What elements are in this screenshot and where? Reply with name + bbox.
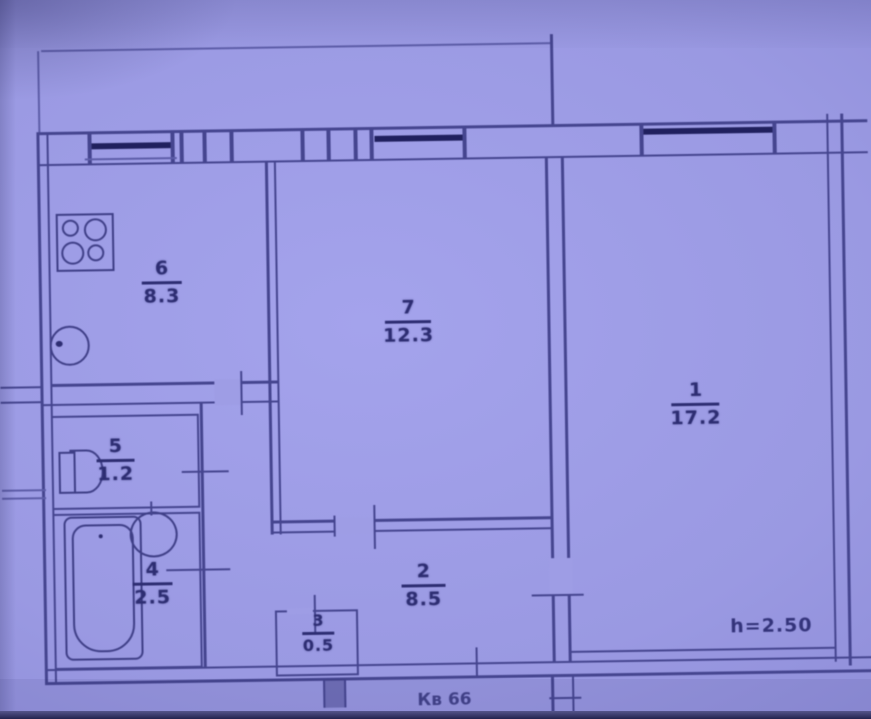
window-post [772, 121, 777, 155]
room-number: 6 [155, 259, 169, 278]
room-label-bathroom: 4 2.5 [132, 560, 173, 608]
stove-burner [61, 241, 84, 264]
door-opening-kitchen [214, 379, 240, 405]
window-mullion [326, 128, 331, 162]
wall-right-inner [826, 114, 837, 662]
window-mullion [179, 130, 184, 164]
room-area: 8.5 [405, 590, 442, 610]
fraction-bar [302, 632, 334, 636]
room-label-hallway: 2 8.5 [401, 562, 446, 610]
door-opening-room7 [335, 517, 373, 535]
door-swing-tick-kitchen [240, 371, 243, 415]
window-mullion [353, 127, 358, 161]
room-number: 7 [401, 298, 415, 317]
wall-room7-bottom [271, 527, 553, 533]
room-number: 1 [689, 381, 703, 400]
photo-shadow-left [0, 0, 16, 719]
stove-burner [87, 244, 104, 261]
floor-plan-photo: 6 8.3 7 12.3 1 17.2 5 1.2 4 2.5 2 8.5 [0, 0, 871, 719]
wall-left-outer [36, 132, 48, 684]
fraction-bar [97, 459, 135, 463]
room-number: 5 [109, 437, 123, 456]
room-label-room7: 7 12.3 [383, 298, 435, 346]
window-mullion [202, 130, 207, 164]
room-label-closet: 3 0.5 [302, 613, 335, 654]
window-mullion [229, 129, 234, 163]
room-area: 17.2 [670, 409, 721, 429]
stove-icon [56, 213, 115, 272]
room-label-wc: 5 1.2 [96, 437, 135, 485]
door-jamb-room7 [333, 516, 335, 537]
window-mullion [300, 128, 305, 162]
room-area: 1.2 [97, 465, 134, 485]
door-swing-tick-room7 [373, 505, 376, 549]
wall-room7-left [265, 161, 274, 535]
window-post [462, 125, 467, 159]
wall-room7-left [274, 160, 282, 534]
room-number: 4 [145, 560, 159, 579]
room-area: 8.3 [143, 287, 180, 307]
kitchen-window-sill [85, 157, 177, 160]
wall-room7-bottom [271, 516, 553, 523]
wall-kitchen-bottom [50, 380, 279, 387]
kitchen-window [92, 142, 171, 149]
room-area: 2.5 [134, 588, 171, 608]
washbasin-tap [150, 501, 152, 515]
room-number: 3 [312, 613, 323, 629]
wall-right-outer [840, 114, 852, 666]
room-label-room1: 1 17.2 [670, 381, 722, 429]
room-label-kitchen: 6 8.3 [141, 259, 182, 307]
room1-window [643, 127, 772, 135]
room-area: 12.3 [383, 326, 434, 346]
sink-drain [56, 341, 63, 347]
photo-shadow-corner [0, 0, 260, 120]
bathtub-inner [72, 524, 136, 653]
fraction-bar [142, 281, 182, 285]
door-opening-room1 [549, 558, 573, 594]
bathtub-drain [99, 534, 103, 538]
room7-window [374, 135, 462, 142]
photo-shadow-bottom-area [0, 679, 871, 712]
wall-room1-bottom [569, 647, 837, 653]
room-number: 2 [417, 562, 431, 581]
window-post [369, 127, 374, 161]
entrance-door-tick [476, 647, 478, 678]
ceiling-height-label: h=2.50 [730, 614, 813, 637]
stove-burner [62, 220, 79, 237]
wall-kitchen-bottom [43, 400, 280, 406]
stove-burner [84, 218, 107, 241]
door-swing-tick-room1 [532, 594, 584, 597]
photo-edge-bottom [0, 711, 871, 719]
room-area: 0.5 [303, 638, 335, 654]
